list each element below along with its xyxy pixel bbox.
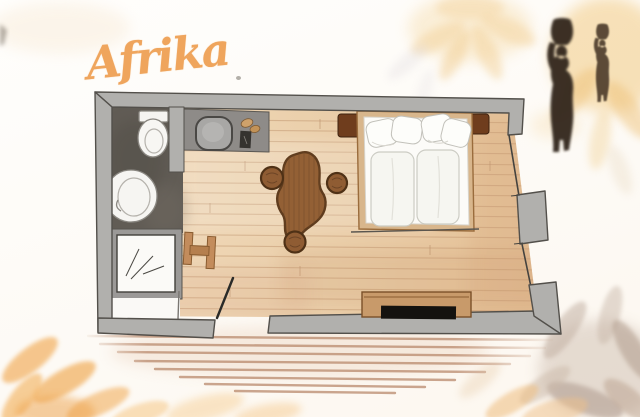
pouf-bottom: [285, 232, 306, 253]
watercolor-flower-top-right: [530, 0, 640, 198]
tv: [381, 306, 456, 320]
washbasin: [105, 170, 157, 222]
double-bed: [351, 111, 479, 232]
pouf-left: [261, 167, 283, 189]
room-title: Afrika: [84, 27, 231, 87]
pouf-right: [327, 173, 347, 193]
vanity-counter: [184, 109, 269, 152]
wall-left: [95, 92, 112, 332]
toilet: [138, 111, 168, 157]
shower: [111, 229, 182, 299]
sideboard: [362, 292, 471, 319]
afrika-room-plan-page: Afrika: [0, 0, 640, 417]
window-upper: [517, 191, 548, 244]
watercolor-flower-top: [383, 0, 540, 113]
wall-bottom-left: [98, 318, 215, 338]
title-dot: [236, 76, 241, 80]
wall-bathroom: [169, 107, 184, 172]
entry-niche: [111, 298, 180, 319]
